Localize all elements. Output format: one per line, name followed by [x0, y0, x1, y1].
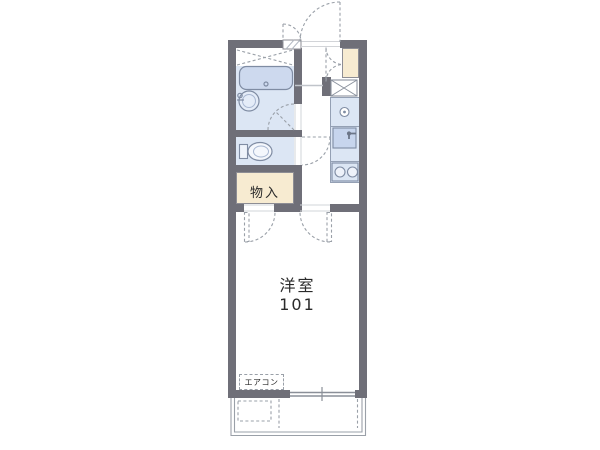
aircon-label: エアコン — [245, 377, 279, 388]
room-name: 洋室 — [236, 276, 359, 295]
stove-burners-icon — [332, 163, 358, 181]
entrance-door-arc — [300, 2, 340, 42]
window-sliding — [290, 387, 355, 401]
meter-box-door-arc — [283, 24, 301, 42]
sink-icon — [333, 128, 356, 148]
room-number: 101 — [236, 295, 359, 314]
balcony — [231, 398, 366, 436]
bathroom-door-arc — [268, 104, 294, 130]
bathtub-icon — [240, 67, 293, 90]
toilet-door-arc — [302, 137, 330, 165]
shoe-cabinet-door-arcs — [326, 48, 343, 82]
washer-drain-icon — [340, 108, 349, 117]
meter-box — [283, 40, 301, 49]
washbasin-icon — [237, 91, 259, 111]
aircon-box: エアコン — [239, 374, 284, 390]
ac-outdoor-unit — [238, 401, 271, 421]
closet-door-arc — [245, 212, 276, 242]
room-door-arc — [300, 212, 332, 242]
refrigerator-space-icon — [331, 80, 357, 96]
floor-plan-linework — [0, 0, 600, 450]
storage-label: 物入 — [236, 182, 294, 201]
toilet-icon — [240, 143, 273, 161]
main-room-label: 洋室 101 — [236, 276, 359, 314]
floor-plan: 物入 洋室 101 エアコン — [0, 0, 600, 450]
